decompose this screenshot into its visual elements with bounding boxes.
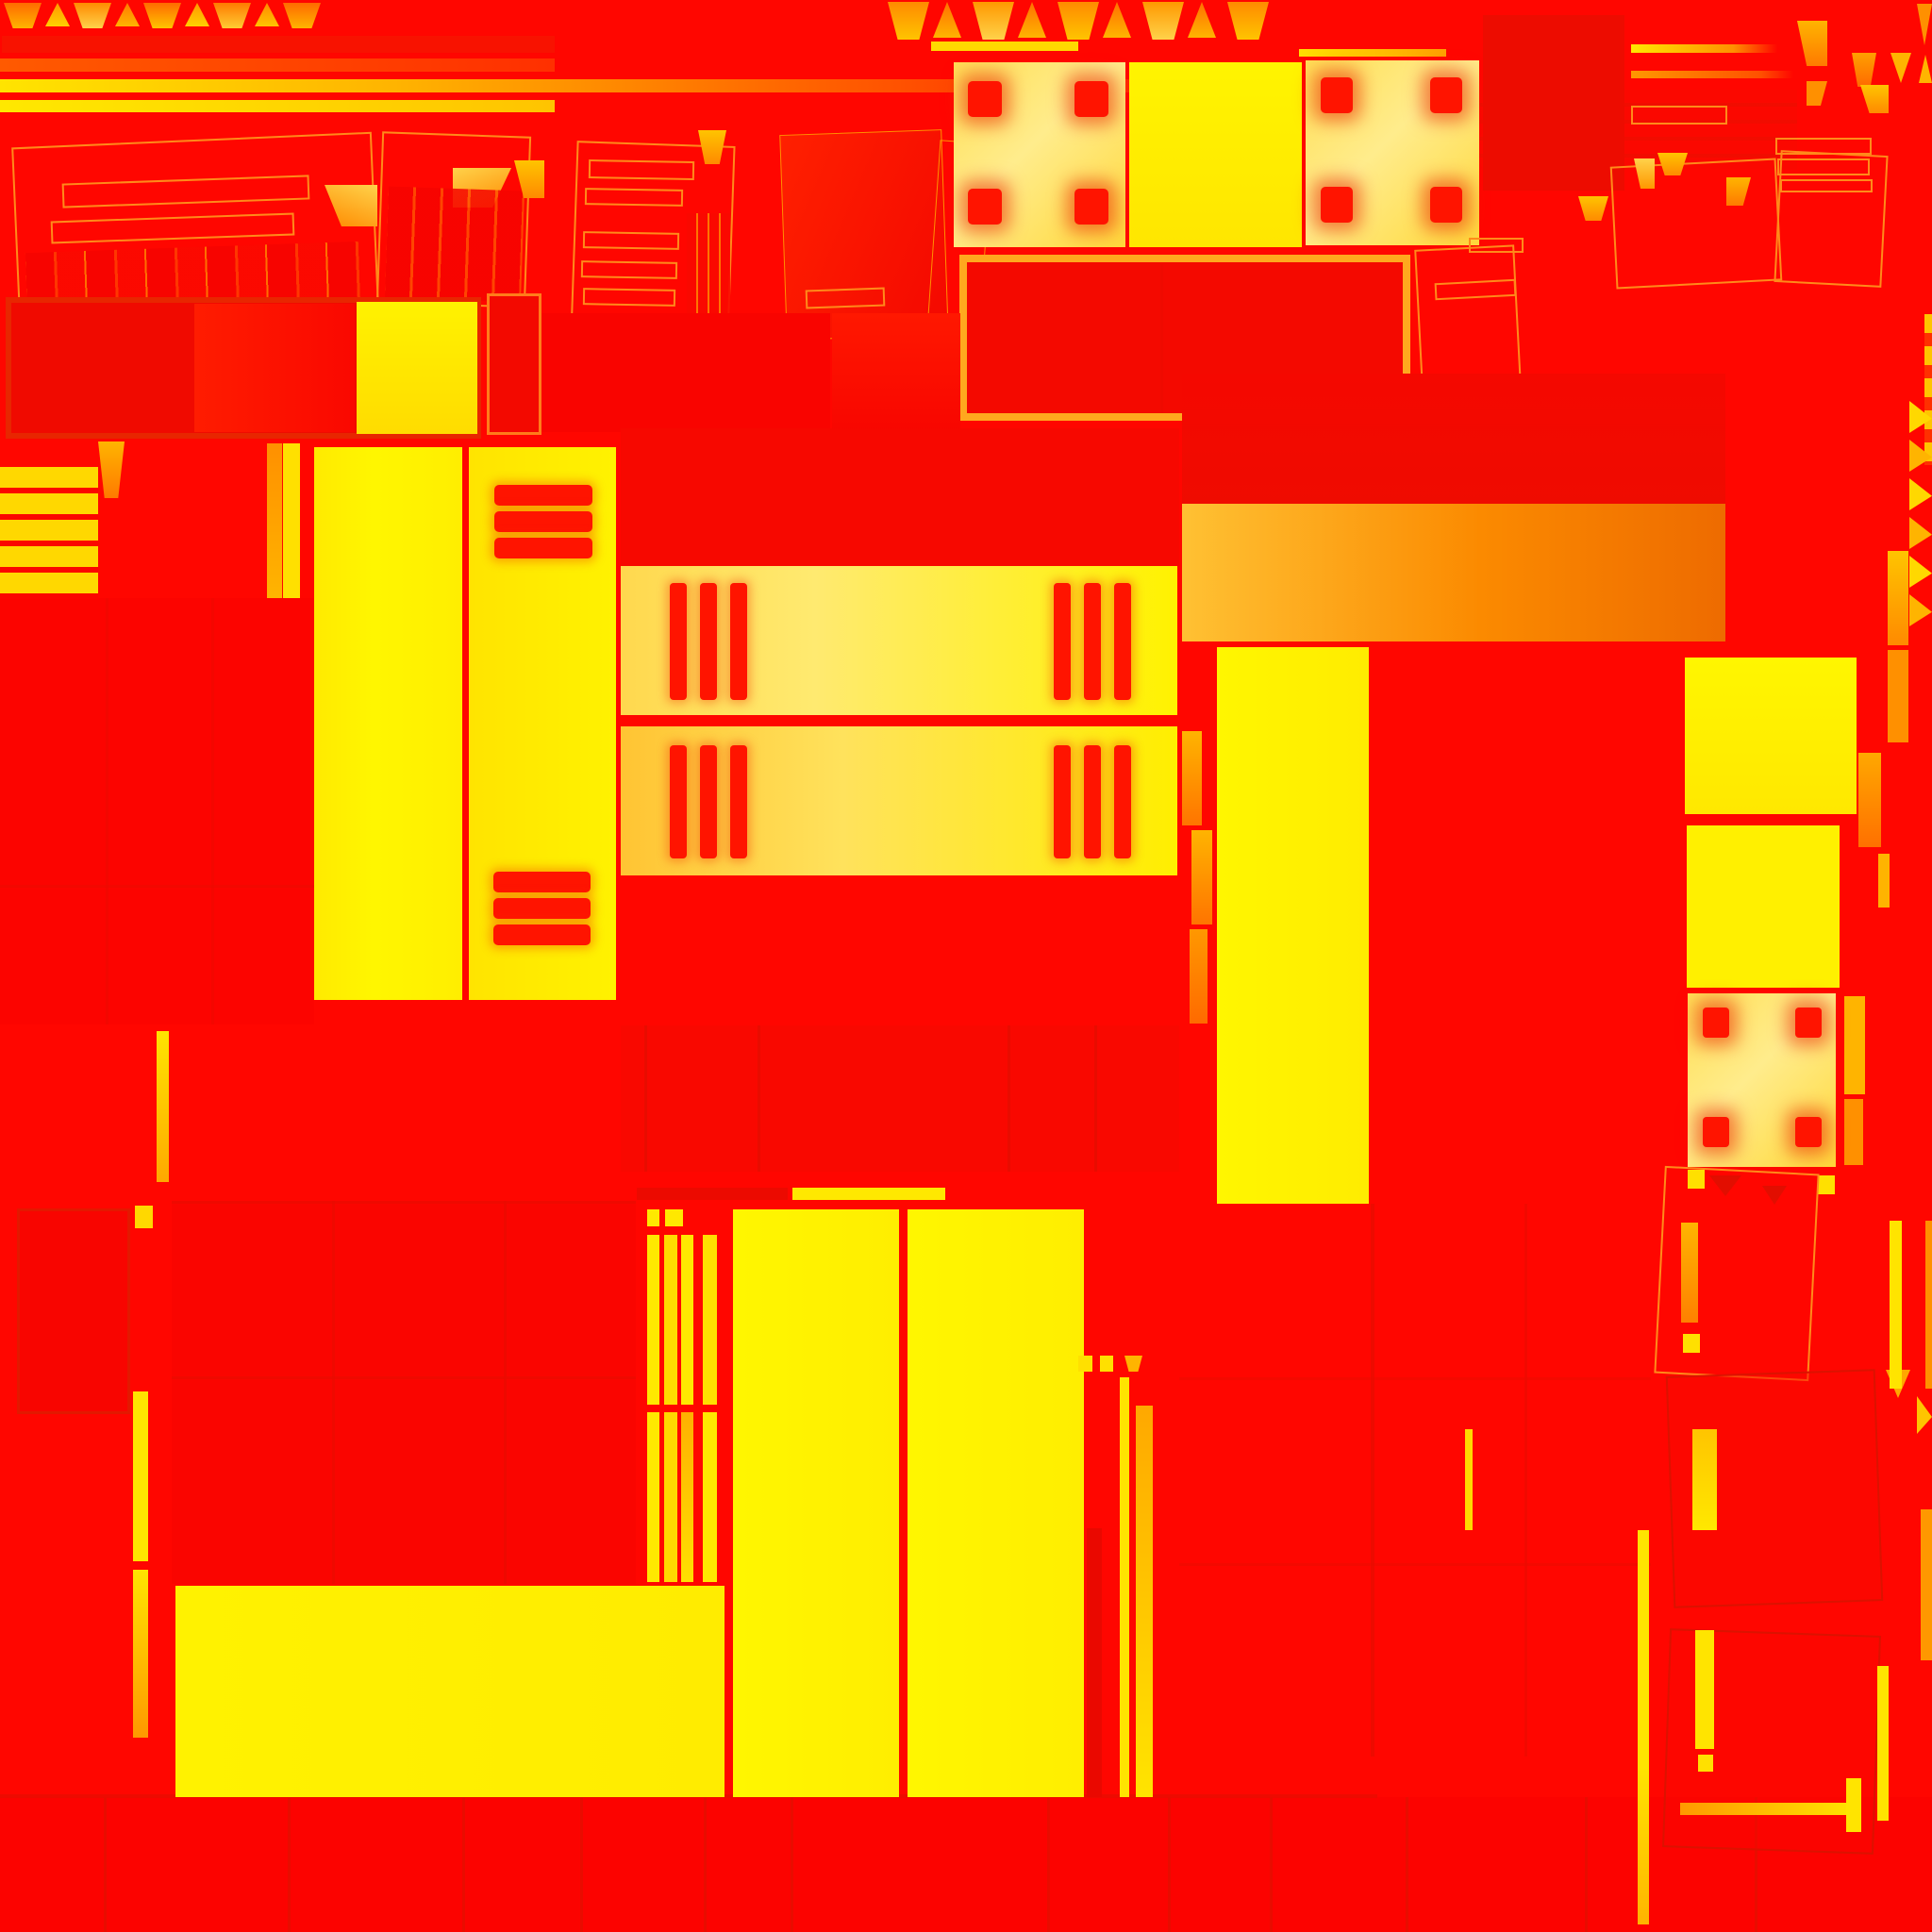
pennant-left-5	[143, 3, 181, 28]
faint-panel-mid-1	[526, 313, 830, 432]
tall-yellow-column	[1217, 647, 1369, 1204]
right-sq-1	[1078, 1356, 1092, 1372]
texture-atlas	[0, 0, 1932, 1932]
orange-gradient-band	[1182, 504, 1725, 641]
br-edge-strip-2	[1925, 1221, 1932, 1389]
right-yellow-block-1	[1685, 658, 1857, 814]
band2-bar-r2	[1084, 745, 1101, 858]
dice3-dot-2	[1795, 1008, 1822, 1038]
cluster-strip-a4	[703, 1235, 717, 1405]
panel-left-mid-seam-v2	[211, 598, 214, 1024]
br-strip-2	[1638, 1530, 1649, 1924]
far-right-strip-3	[1878, 854, 1890, 908]
pennant-left-3	[74, 3, 111, 28]
dark-bar	[637, 1188, 788, 1200]
small-strip-orange	[267, 443, 282, 598]
pennant-mid-2	[933, 2, 961, 38]
cluster-strip-a3	[681, 1235, 693, 1405]
trap-tr-5	[1890, 53, 1911, 83]
pennant-mid-4	[1018, 2, 1046, 38]
cluster-sq-1	[647, 1209, 659, 1226]
slant-cluster-sq	[1683, 1334, 1700, 1353]
trap-tr-2	[1852, 53, 1876, 87]
outline-rect-tr-1	[1631, 106, 1727, 125]
pennant-mid-9	[1227, 2, 1269, 40]
colb-stripe-top-1	[494, 485, 592, 506]
trap-tr-3	[1807, 81, 1827, 106]
pennant-mid-1	[888, 2, 929, 40]
slant-cluster-strip	[1681, 1223, 1698, 1323]
band2-bar-r3	[1114, 745, 1131, 858]
bordered-rect-seam	[1160, 264, 1163, 413]
bottom-seam-11	[1585, 1797, 1588, 1932]
pennant-left-4	[115, 3, 140, 26]
small-sq-left	[135, 1206, 153, 1228]
dice3-dot-3	[1703, 1117, 1729, 1147]
grid-seam-h1	[172, 1376, 636, 1379]
stripe-yellow-short	[0, 100, 555, 112]
dice1-dot-1	[968, 81, 1002, 117]
small-strip-yellow	[283, 443, 300, 598]
slant-quad-tr-2	[1774, 150, 1888, 288]
pennant-left-2	[45, 3, 70, 26]
colb-stripe-top-3	[494, 538, 592, 558]
sliver-1	[1182, 731, 1202, 825]
line-yellow-above-dice	[931, 42, 1078, 51]
sliver-3	[1190, 929, 1207, 1024]
br-sq	[1698, 1755, 1713, 1772]
mid-band-seam-1	[644, 1025, 647, 1172]
edge-tri-6	[1909, 594, 1932, 626]
bottom-seam-9	[1270, 1797, 1273, 1932]
mid-band-seam-4	[1094, 1025, 1097, 1172]
line-yellow-right-2	[1631, 44, 1777, 53]
colb-stripe-bot-2	[493, 898, 591, 919]
pennant-left-1	[4, 3, 42, 28]
colb-stripe-bot-3	[493, 924, 591, 945]
crate3-bar-4	[581, 260, 677, 279]
left-strip-2	[133, 1570, 148, 1738]
grid-seam-v1	[332, 1201, 335, 1584]
big-quad	[779, 129, 949, 341]
right-strip-2	[1136, 1406, 1153, 1797]
bottom-seam-2	[288, 1797, 291, 1932]
dice1-dot-2	[1074, 81, 1108, 117]
band2-bar-r1	[1054, 745, 1071, 858]
right-strip-1	[1120, 1377, 1129, 1797]
dice1-dot-3	[968, 189, 1002, 225]
dice2-dot-1	[1321, 77, 1353, 113]
far-right-strip-2	[1888, 650, 1908, 742]
orange-strip-r2	[1844, 996, 1865, 1094]
bottom-seam-1	[104, 1797, 107, 1932]
right-yellow-block-2	[1687, 825, 1840, 988]
pennant-left-8	[255, 3, 279, 26]
trap-tr-1	[1797, 21, 1827, 66]
big-column-2	[908, 1209, 1084, 1797]
line-yellow-right-1	[1299, 49, 1446, 57]
small-bordered-rect	[487, 293, 541, 435]
faint-panel-mid-2	[832, 313, 960, 432]
bottom-seam-5	[704, 1797, 707, 1932]
edge-tri-4	[1909, 517, 1932, 549]
bottom-seam-10	[1406, 1797, 1408, 1932]
dark-block-topright	[1483, 15, 1624, 191]
sliver-2	[1191, 830, 1212, 924]
band2-bar-l2	[700, 745, 717, 858]
pennant-left-7	[213, 3, 251, 28]
red-block-above-bands	[621, 428, 1179, 566]
dark-rect-bright-mid	[194, 304, 355, 432]
corner-tri-2	[1919, 55, 1932, 83]
left-strip-1	[133, 1391, 148, 1561]
big-column-1	[733, 1209, 899, 1797]
corner-tri-1	[1917, 4, 1932, 45]
cluster-strip-b4	[703, 1412, 717, 1582]
br-tri-2	[1917, 1396, 1932, 1434]
br-strip-4	[1695, 1630, 1714, 1749]
dice1-dot-4	[1074, 189, 1108, 225]
crate3-bar-2	[585, 188, 683, 207]
mid-band-seam-2	[758, 1025, 760, 1172]
bottom-seam-3	[462, 1797, 465, 1932]
yellow-bar	[792, 1188, 945, 1200]
br-seam-h1	[1179, 1377, 1651, 1380]
grid-seam-h2	[172, 1201, 636, 1204]
big-quad-bar	[806, 288, 886, 309]
br-edge-strip-3	[1921, 1509, 1932, 1660]
crate2-slats	[385, 187, 525, 303]
colb-stripe-bot-1	[493, 872, 591, 892]
yellow-block-inset	[357, 302, 477, 434]
pennant-mid-3	[973, 2, 1014, 40]
edge-tri-5	[1909, 556, 1932, 588]
br-strip-3	[1692, 1429, 1717, 1530]
line-orange-right	[1631, 71, 1793, 78]
left-stripes-block	[0, 467, 98, 599]
orange-strip-r3	[1844, 1099, 1863, 1165]
pennant-mid-8	[1188, 2, 1216, 38]
pennant-left-9	[283, 3, 321, 28]
pennant-mid-7	[1142, 2, 1184, 40]
band1-bar-r1	[1054, 583, 1071, 700]
border-panel-bl	[17, 1208, 130, 1414]
panel-left-mid	[0, 598, 314, 1024]
trap-mid-4	[1578, 196, 1608, 221]
dice3-dot-1	[1703, 1008, 1729, 1038]
cluster-strip-a2	[664, 1235, 677, 1405]
edge-dash-column	[1924, 314, 1932, 465]
trap-tr-4	[1860, 85, 1889, 113]
br-seam-v2	[1524, 1204, 1527, 1757]
mid-band-seam-3	[1008, 1025, 1010, 1172]
bottom-seam-8	[1168, 1797, 1171, 1932]
slant-quad-tr-1	[1610, 158, 1783, 289]
cluster-strip-b2	[664, 1412, 677, 1582]
stripe-dark-band	[2, 36, 555, 53]
band1-bar-l3	[730, 583, 747, 700]
bottom-seam-4	[580, 1797, 583, 1932]
col2-dark-strip	[1087, 1528, 1102, 1797]
band1-bar-r2	[1084, 583, 1101, 700]
dice2-dot-2	[1430, 77, 1462, 113]
dice2-dot-4	[1430, 187, 1462, 223]
grid-seam-v2	[504, 1201, 507, 1584]
sliver-left	[157, 1031, 169, 1182]
left-wedge	[98, 441, 125, 498]
cluster-strip-b1	[647, 1412, 659, 1582]
colb-stripe-top-2	[494, 511, 592, 532]
br-seam-h2	[1179, 1563, 1651, 1566]
cluster-strip-b3	[681, 1412, 693, 1582]
stripe-orange	[0, 58, 555, 72]
yellow-l-rect	[175, 1586, 724, 1797]
br-hstrip	[1680, 1803, 1846, 1815]
band2-bar-l3	[730, 745, 747, 858]
dice2-dot-3	[1321, 187, 1353, 223]
panel-grid-bottom-left	[172, 1201, 636, 1584]
right-trap	[1124, 1356, 1142, 1372]
pennant-left-6	[185, 3, 209, 26]
yellow-square-top	[1129, 62, 1302, 247]
dice3-dot-4	[1795, 1117, 1822, 1147]
column-a	[314, 447, 462, 1000]
br-seam-v1	[1371, 1204, 1374, 1757]
band1-bar-l1	[670, 583, 687, 700]
crate3-bar-3	[583, 231, 679, 250]
cluster-sq-2	[665, 1209, 683, 1226]
band1-bar-r3	[1114, 583, 1131, 700]
edge-tri-3	[1909, 478, 1932, 510]
small-sq-below-dice3-2	[1818, 1175, 1835, 1194]
right-red-band	[1182, 374, 1725, 504]
orange-strip-r1	[1858, 753, 1881, 847]
bottom-seam-7	[1047, 1797, 1050, 1932]
far-right-strip-1	[1888, 551, 1908, 645]
br-strip-1	[1465, 1429, 1473, 1530]
panel-left-mid-seam-v1	[106, 598, 108, 1024]
band1-bar-l2	[700, 583, 717, 700]
bottom-seam-6	[791, 1797, 793, 1932]
pennant-mid-5	[1058, 2, 1099, 40]
br-strip-5	[1877, 1666, 1889, 1821]
br-edge-strip-1	[1890, 1221, 1902, 1389]
panel-left-mid-seam-h	[0, 885, 314, 888]
slant-cluster-outline	[1654, 1166, 1819, 1381]
crate3-bar-5	[583, 288, 675, 307]
cluster-strip-a1	[647, 1235, 659, 1405]
right-sq-2	[1100, 1356, 1113, 1372]
band2-bar-l1	[670, 745, 687, 858]
br-vstrip	[1846, 1778, 1861, 1832]
pennant-mid-6	[1103, 2, 1131, 38]
crate3-bar-1	[589, 159, 694, 180]
